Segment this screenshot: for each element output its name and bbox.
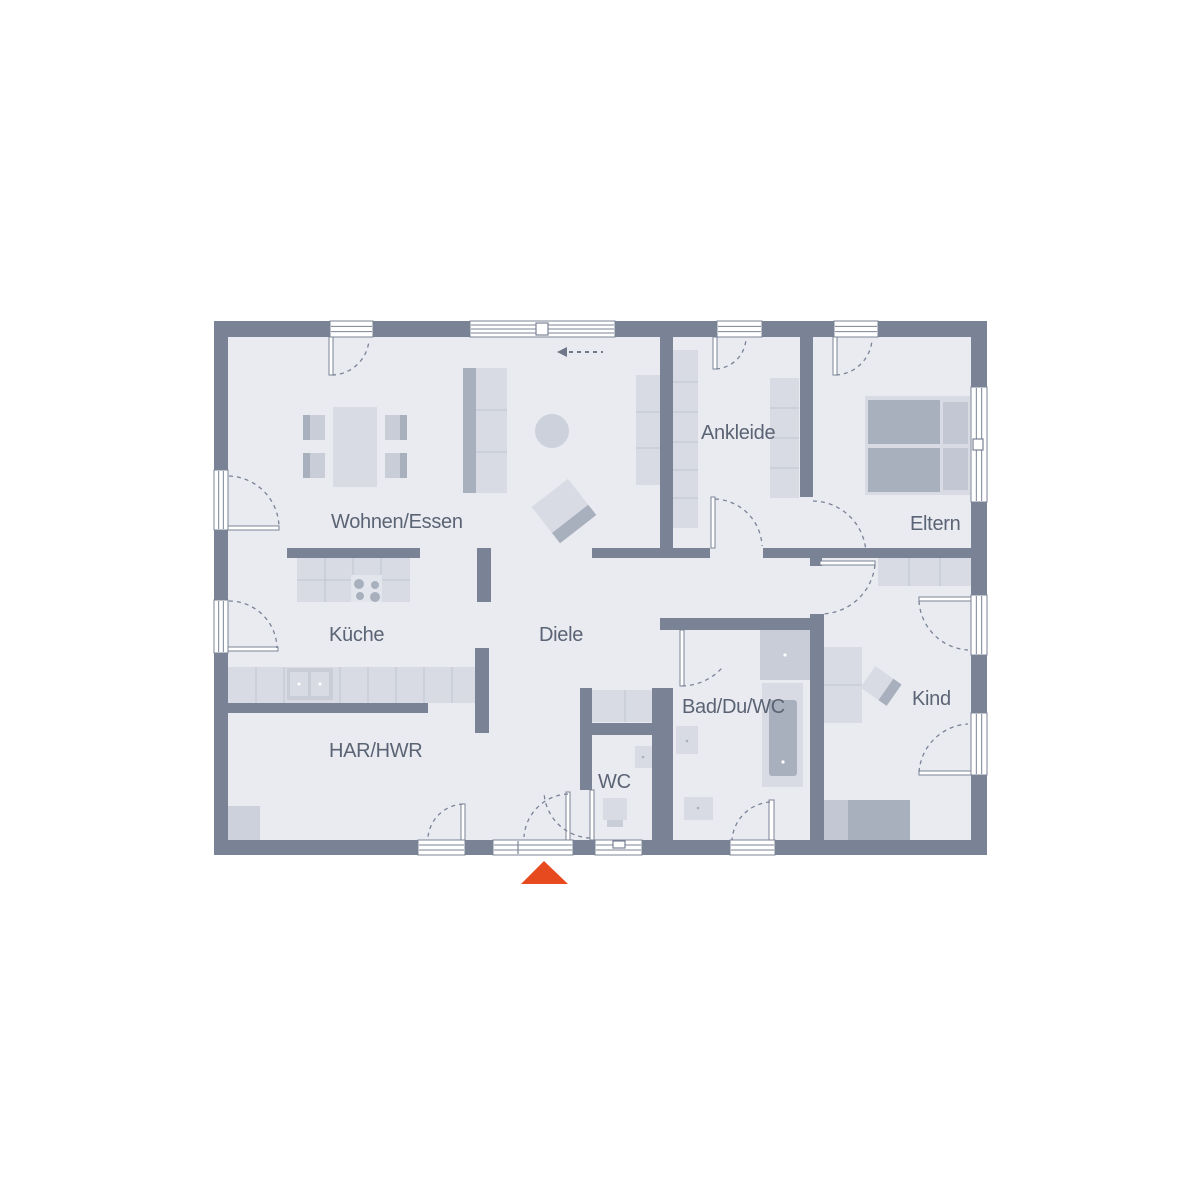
room-label-har-hwr: HAR/HWR	[329, 740, 422, 762]
shower-drain	[783, 653, 786, 656]
window-wohnen-top	[330, 321, 373, 337]
tub-drain	[781, 760, 784, 763]
kind-bed-mattress	[848, 800, 910, 840]
shelf-unit	[636, 375, 660, 485]
window-kind-right-1	[971, 595, 987, 655]
door-leaf	[711, 497, 715, 548]
window-kind-right-2	[971, 713, 987, 775]
burner	[371, 581, 379, 589]
floor-plan-page: Wohnen/EssenKücheDieleHAR/HWRWCBad/Du/WC…	[0, 0, 1200, 1200]
door-har-exterior	[418, 840, 465, 855]
door-leaf	[833, 337, 837, 375]
wall-segment	[477, 548, 491, 602]
wall-segment	[214, 321, 228, 855]
wall-segment	[592, 548, 710, 558]
wall-segment	[228, 703, 428, 713]
window-vent-mark	[613, 841, 625, 848]
window-kueche-left	[214, 600, 228, 653]
kitchen-counter	[228, 667, 477, 703]
window-wohnen-top	[330, 321, 373, 337]
wall-segment	[580, 723, 663, 735]
door-leaf	[820, 561, 875, 565]
window-kind-right-1	[971, 595, 987, 655]
wall-segment	[800, 337, 813, 497]
window-eltern-top	[834, 321, 878, 337]
door-main-entrance	[493, 840, 573, 855]
room-label-ankleide: Ankleide	[701, 422, 775, 444]
door-leaf	[329, 337, 333, 375]
wall-segment	[763, 548, 971, 558]
wall-segment	[580, 688, 592, 790]
room-label-wc: WC	[598, 771, 631, 793]
window-wohnen-left	[214, 470, 228, 530]
room-label-wohnen-essen: Wohnen/Essen	[331, 511, 463, 533]
chair-back	[303, 415, 310, 440]
wall-segment	[475, 648, 489, 733]
window-wohnen-left	[214, 470, 228, 530]
chair-back	[303, 453, 310, 478]
window-eltern-top	[834, 321, 878, 337]
eltern-mattress	[868, 448, 940, 492]
floor-plan-canvas: Wohnen/EssenKücheDieleHAR/HWRWCBad/Du/WC…	[0, 0, 1200, 1200]
entrance-arrow	[521, 861, 568, 884]
chair-back	[400, 453, 407, 478]
door-leaf	[713, 337, 717, 369]
wall-segment	[652, 688, 673, 840]
dining-table	[333, 407, 377, 487]
basin-drain	[642, 756, 645, 759]
toilet-seat	[607, 820, 623, 827]
burner	[370, 592, 380, 602]
sink-drain	[298, 683, 301, 686]
wall-segment	[660, 618, 813, 630]
window-kueche-left	[214, 600, 228, 653]
sofa-back	[463, 368, 476, 493]
room-label-kueche: Küche	[329, 624, 384, 646]
door-leaf	[566, 792, 570, 840]
room-label-bad-du-wc: Bad/Du/WC	[682, 696, 785, 718]
eltern-mattress	[868, 400, 940, 444]
har-cabinet	[228, 806, 260, 840]
eltern-pillow	[943, 402, 968, 444]
door-leaf	[228, 647, 278, 651]
door-leaf	[680, 630, 684, 686]
door-leaf	[769, 800, 774, 840]
door-leaf	[461, 804, 465, 840]
round-rug	[535, 414, 569, 448]
window-bad-bottom	[730, 840, 775, 855]
door-leaf	[919, 771, 971, 775]
kind-wardrobe	[878, 558, 971, 586]
door-main-entrance	[493, 840, 573, 855]
wall-segment	[810, 614, 824, 840]
wall-segment	[660, 337, 673, 548]
door-har-exterior	[418, 840, 465, 855]
room-label-diele: Diele	[539, 624, 583, 646]
window-bad-bottom	[730, 840, 775, 855]
door-leaf	[590, 790, 594, 840]
window-ankleide-top	[717, 321, 762, 337]
basin-drain	[686, 740, 689, 743]
sink-drain	[319, 683, 322, 686]
eltern-pillow	[943, 448, 968, 490]
door-leaf	[919, 597, 971, 601]
room-label-kind: Kind	[912, 688, 951, 710]
window-handle	[973, 439, 983, 450]
window-kind-right-2	[971, 713, 987, 775]
window-ankleide-top	[717, 321, 762, 337]
burner	[356, 592, 364, 600]
sliding-door-handle	[536, 323, 548, 335]
door-leaf	[228, 526, 279, 530]
chair-back	[400, 415, 407, 440]
room-label-eltern: Eltern	[910, 513, 960, 535]
toilet	[603, 798, 627, 820]
wall-segment	[287, 548, 420, 558]
basin-drain	[697, 807, 700, 810]
burner	[354, 579, 364, 589]
